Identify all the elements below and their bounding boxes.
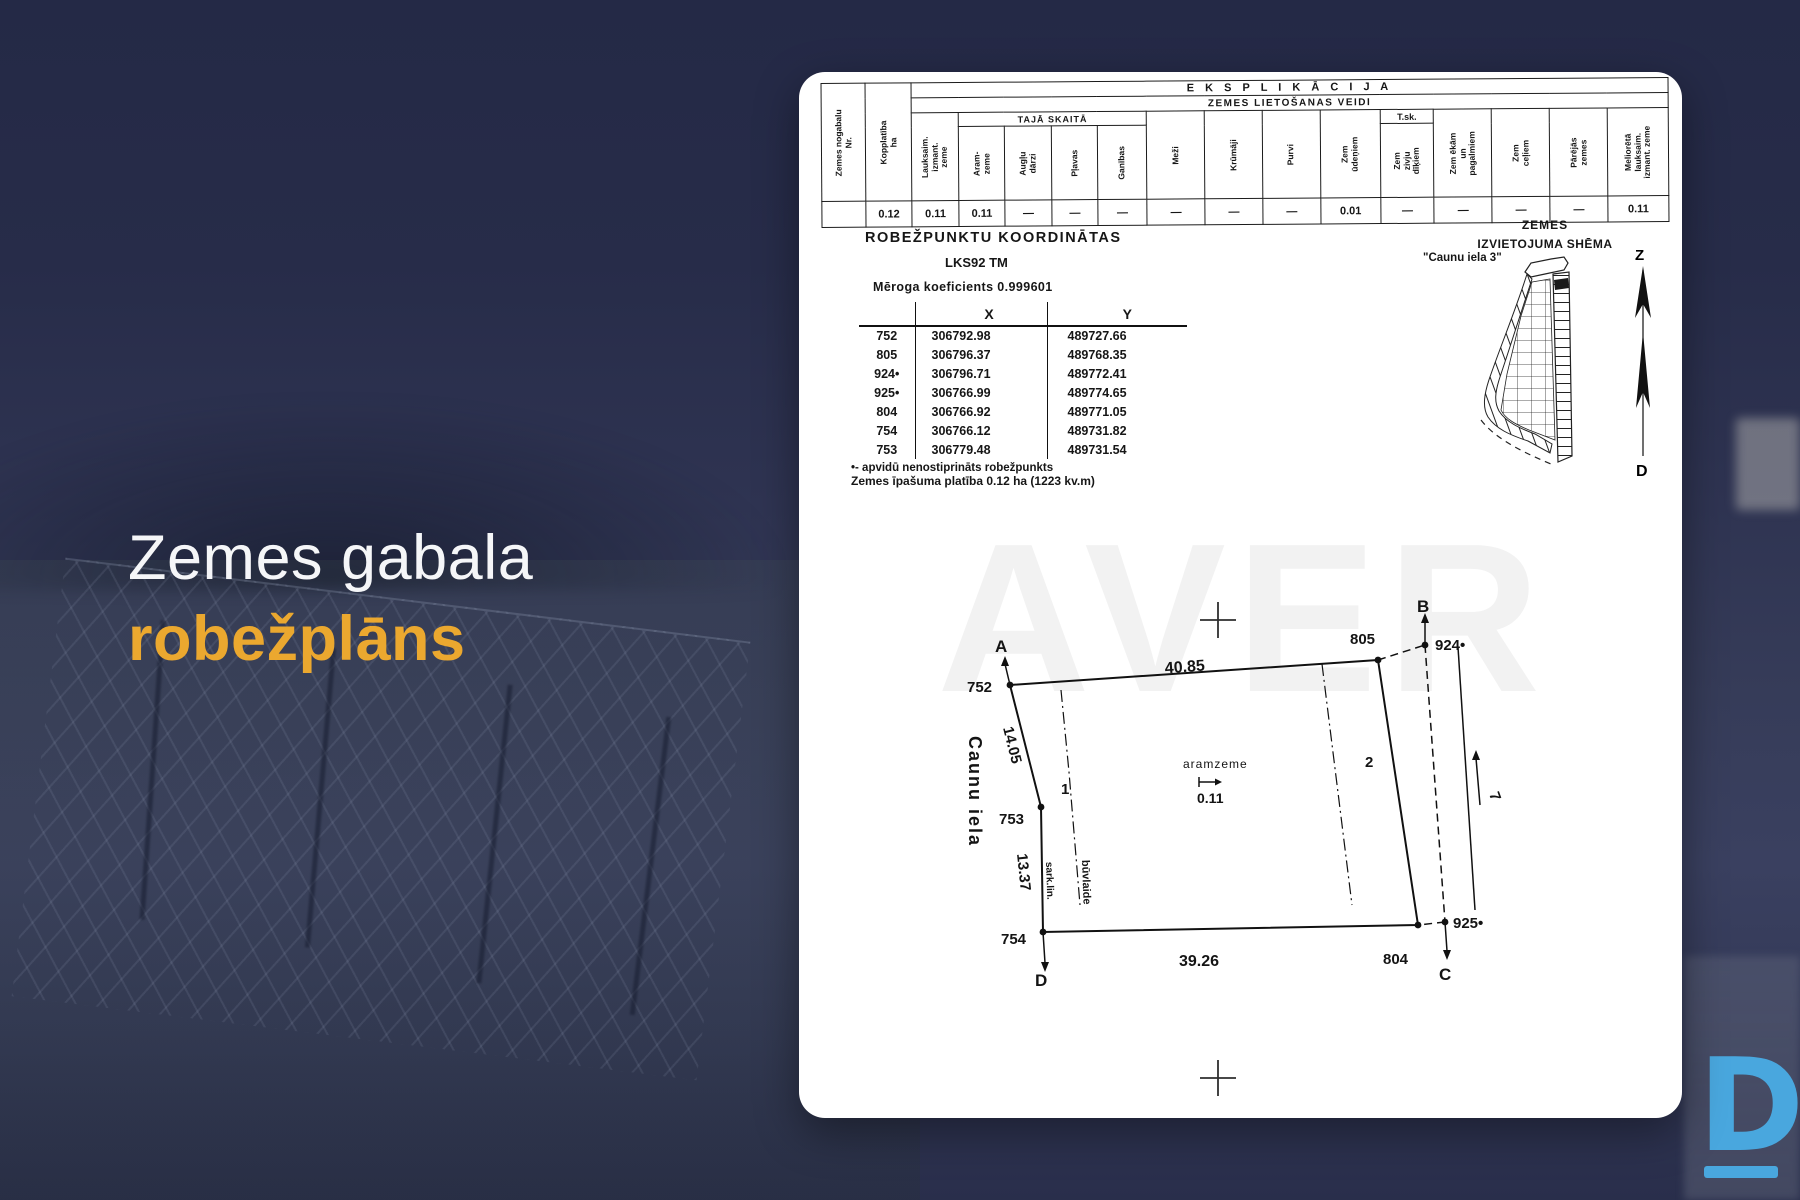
table-row: 805306796.37489768.35 [859, 345, 1187, 364]
street-name-label: Caunu iela [965, 736, 985, 847]
corner-a-label: A [995, 637, 1007, 656]
south-label: D [1636, 463, 1648, 480]
measure-left-lower: 13.37 [1013, 853, 1034, 892]
slide-title: Zemes gabala robežplāns [128, 524, 533, 675]
zone-2-label: 2 [1365, 754, 1373, 771]
col-header: Pļavas [1052, 126, 1098, 200]
north-label: Z [1635, 247, 1644, 264]
point-925-label: 925• [1453, 915, 1483, 932]
explication-table: Zemes nogabalu Nr. Kopplatība ha E K S P… [821, 77, 1670, 228]
red-line-label: sark.lin. [1043, 862, 1055, 900]
corner-c-label: C [1439, 965, 1451, 984]
coordinates-scale-note: Mēroga koeficients 0.999601 [851, 280, 1211, 294]
col-header: Meži [1147, 111, 1205, 199]
measure-bottom: 39.26 [1179, 953, 1219, 970]
zone-1-label: 1 [1061, 781, 1069, 798]
point-753-label: 753 [999, 811, 1024, 828]
measure-top: 40.85 [1164, 658, 1205, 678]
brand-logo-letter: D [1698, 1056, 1794, 1158]
col-header: Zem zivju dīķiem [1380, 123, 1434, 197]
col-x-header: X [915, 302, 1047, 326]
table-subsubtitle: TAJĀ SKAITĀ [959, 111, 1147, 126]
col-header: Lauksaim. izmant. zeme [911, 112, 959, 200]
point-804-label: 804 [1383, 951, 1409, 968]
boundary-plan-document: AVER Zemes nogabalu Nr. Kopplatība ha E … [799, 72, 1682, 1118]
corner-direction-arrows [1001, 613, 1480, 972]
col-header: Augļu dārzi [1004, 126, 1052, 200]
point-754-label: 754 [1001, 931, 1027, 948]
col-y-header: Y [1047, 302, 1187, 326]
col-header: Ganības [1097, 125, 1147, 199]
slide-title-line2: robežplāns [128, 605, 533, 674]
slide-title-line1: Zemes gabala [128, 524, 533, 593]
table-row: 753306779.48489731.54 [859, 440, 1187, 459]
landuse-symbol [1199, 777, 1222, 787]
area-note: Zemes īpašuma platība 0.12 ha (1223 kv.m… [851, 474, 1211, 488]
col-header: Aram- zeme [959, 126, 1005, 200]
point-752-label: 752 [967, 679, 992, 696]
table-row: 804306766.92489771.05 [859, 402, 1187, 421]
tsk-header: T.sk. [1380, 109, 1434, 123]
building-line-label: būvlaide [1079, 860, 1093, 905]
col-header: Krūmāji [1204, 110, 1262, 198]
landuse-label: aramzeme [1183, 757, 1248, 771]
coordinates-table: X Y 752306792.98489727.66 805306796.3748… [859, 302, 1187, 459]
corner-b-label: B [1417, 597, 1429, 616]
table-row: 924•306796.71489772.41 [859, 364, 1187, 383]
col-header-total-area: Kopplatība ha [865, 83, 911, 201]
col-header: Zem ēkām un pagalmiem [1434, 109, 1492, 197]
point-805-label: 805 [1350, 631, 1375, 648]
arrow-7-label: 7 [1485, 790, 1504, 804]
col-header: Purvi [1262, 110, 1320, 198]
brand-logo: D [1698, 1056, 1794, 1178]
north-arrow: Z D [1635, 247, 1651, 480]
table-row: 752306792.98489727.66 [859, 326, 1187, 345]
coordinates-datum: LKS92 TM [851, 255, 1211, 270]
col-header: Pārējās zemes [1549, 108, 1607, 196]
coordinates-footnote: •- apvidū nenostiprināts robežpunkts [851, 462, 1211, 474]
background-house [1736, 418, 1800, 510]
slide: Zemes gabala robežplāns D AVER Zemes nog… [0, 0, 1800, 1200]
registration-crosses [1200, 602, 1236, 1096]
table-row: 925•306766.99489774.65 [859, 383, 1187, 402]
col-header: Zem ceļiem [1491, 108, 1549, 196]
point-924-label: 924• [1435, 637, 1465, 654]
coordinates-block: ROBEŽPUNKTU KOORDINĀTAS LKS92 TM Mēroga … [851, 230, 1211, 488]
col-header: Zem ūdeņiem [1320, 110, 1381, 198]
parcel-boundary-lines [1010, 645, 1475, 932]
landuse-area-label: 0.11 [1197, 790, 1224, 806]
col-header: Meliorētā lauksaim. izmant. zeme [1607, 108, 1669, 196]
parcel-map [1481, 257, 1572, 464]
col-header-parcel-nr: Zemes nogabalu Nr. [821, 83, 866, 201]
corner-d-label: D [1035, 971, 1047, 990]
coordinates-title: ROBEŽPUNKTU KOORDINĀTAS [851, 230, 1211, 246]
table-row: 754306766.12489731.82 [859, 421, 1187, 440]
location-scheme-map: Z D [1447, 244, 1667, 480]
